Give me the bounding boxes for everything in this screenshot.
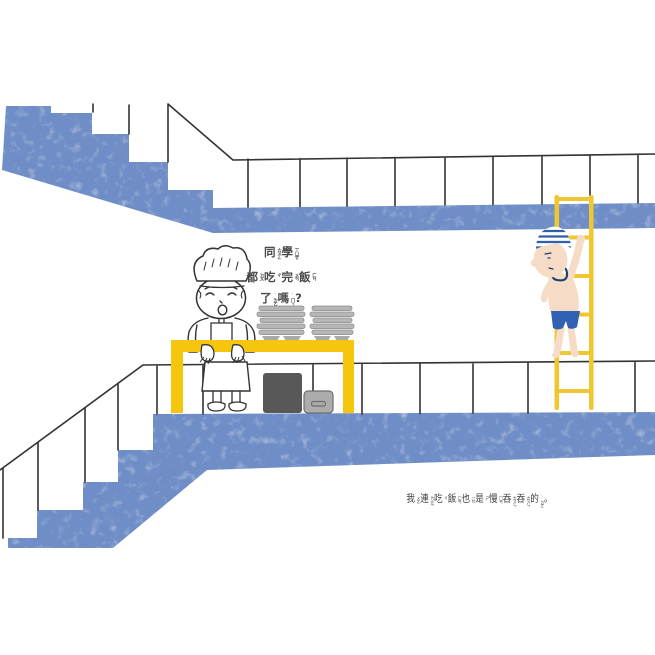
chef-apron-bib: [211, 317, 232, 344]
lower-staircase-and-floor: [8, 412, 655, 548]
boy-swim-trunks: [551, 311, 580, 330]
ladder-rail-right: [589, 195, 594, 410]
boy-legs: [557, 329, 574, 352]
under-counter-bins: [263, 373, 333, 413]
char-with-zhuyin: 也ㄧㄝˇ: [461, 495, 474, 506]
picture-book-page: 同ㄊㄨㄥˊ學ㄒㄩㄝˊ都ㄉㄡ吃ㄔ完ㄨㄢˊ飯ㄈㄢˋ了˙ㄌㄜ嗎˙ㄇㄚ? 我ㄨㄛˇ連ㄌㄧ…: [0, 0, 655, 655]
char-with-zhuyin: 的˙ㄉㄜ: [530, 495, 543, 507]
char-with-zhuyin: 了˙ㄌㄜ: [260, 293, 277, 305]
char-with-zhuyin: 飯ㄈㄢˋ: [299, 272, 316, 284]
speech-line: 同ㄊㄨㄥˊ學ㄒㄩㄝˊ: [225, 247, 337, 263]
char-with-zhuyin: 飯ㄈㄢˋ: [448, 495, 461, 507]
char-with-zhuyin: 學ㄒㄩㄝˊ: [282, 247, 299, 263]
char-with-zhuyin: 連ㄌㄧㄢˊ: [420, 495, 433, 510]
char-with-zhuyin: 。: [544, 495, 553, 505]
char-with-zhuyin: 都ㄉㄡ: [247, 272, 264, 284]
caption-text: 我ㄨㄛˇ連ㄌㄧㄢˊ吃ㄔ飯ㄈㄢˋ也ㄧㄝˇ是ㄕˋ慢ㄇㄢˋ吞ㄊㄨㄣ吞ㄊㄨㄣ的˙ㄉㄜ。: [406, 495, 553, 510]
char-with-zhuyin: 吃ㄔ: [264, 272, 281, 284]
illustration-canvas: [0, 0, 655, 655]
speech-line: 了˙ㄌㄜ嗎˙ㄇㄚ?: [225, 293, 337, 305]
char-with-zhuyin: 同ㄊㄨㄥˊ: [264, 247, 281, 263]
chef-apron-skirt: [202, 362, 250, 391]
speech-text: 同ㄊㄨㄥˊ學ㄒㄩㄝˊ都ㄉㄡ吃ㄔ完ㄨㄢˊ飯ㄈㄢˋ了˙ㄌㄜ嗎˙ㄇㄚ?: [225, 247, 337, 314]
chef-shoes: [208, 402, 246, 411]
char-with-zhuyin: ?: [295, 293, 302, 305]
char-with-zhuyin: 是ㄕˋ: [475, 495, 488, 505]
char-with-zhuyin: 吃ㄔ: [434, 495, 447, 505]
char-with-zhuyin: 吞ㄊㄨㄣ: [517, 495, 530, 507]
char-with-zhuyin: 慢ㄇㄢˋ: [489, 495, 502, 507]
char-with-zhuyin: 嗎˙ㄇㄚ: [278, 293, 295, 305]
boy-hand: [577, 235, 585, 243]
char-with-zhuyin: 吞ㄊㄨㄣ: [503, 495, 516, 507]
char-with-zhuyin: 完ㄨㄢˊ: [282, 272, 299, 284]
dark-bin: [263, 373, 302, 413]
boy-climbing-ladder: [531, 227, 586, 358]
char-with-zhuyin: 我ㄨㄛˇ: [406, 495, 419, 507]
speech-line: 都ㄉㄡ吃ㄔ完ㄨㄢˊ飯ㄈㄢˋ: [225, 272, 337, 284]
